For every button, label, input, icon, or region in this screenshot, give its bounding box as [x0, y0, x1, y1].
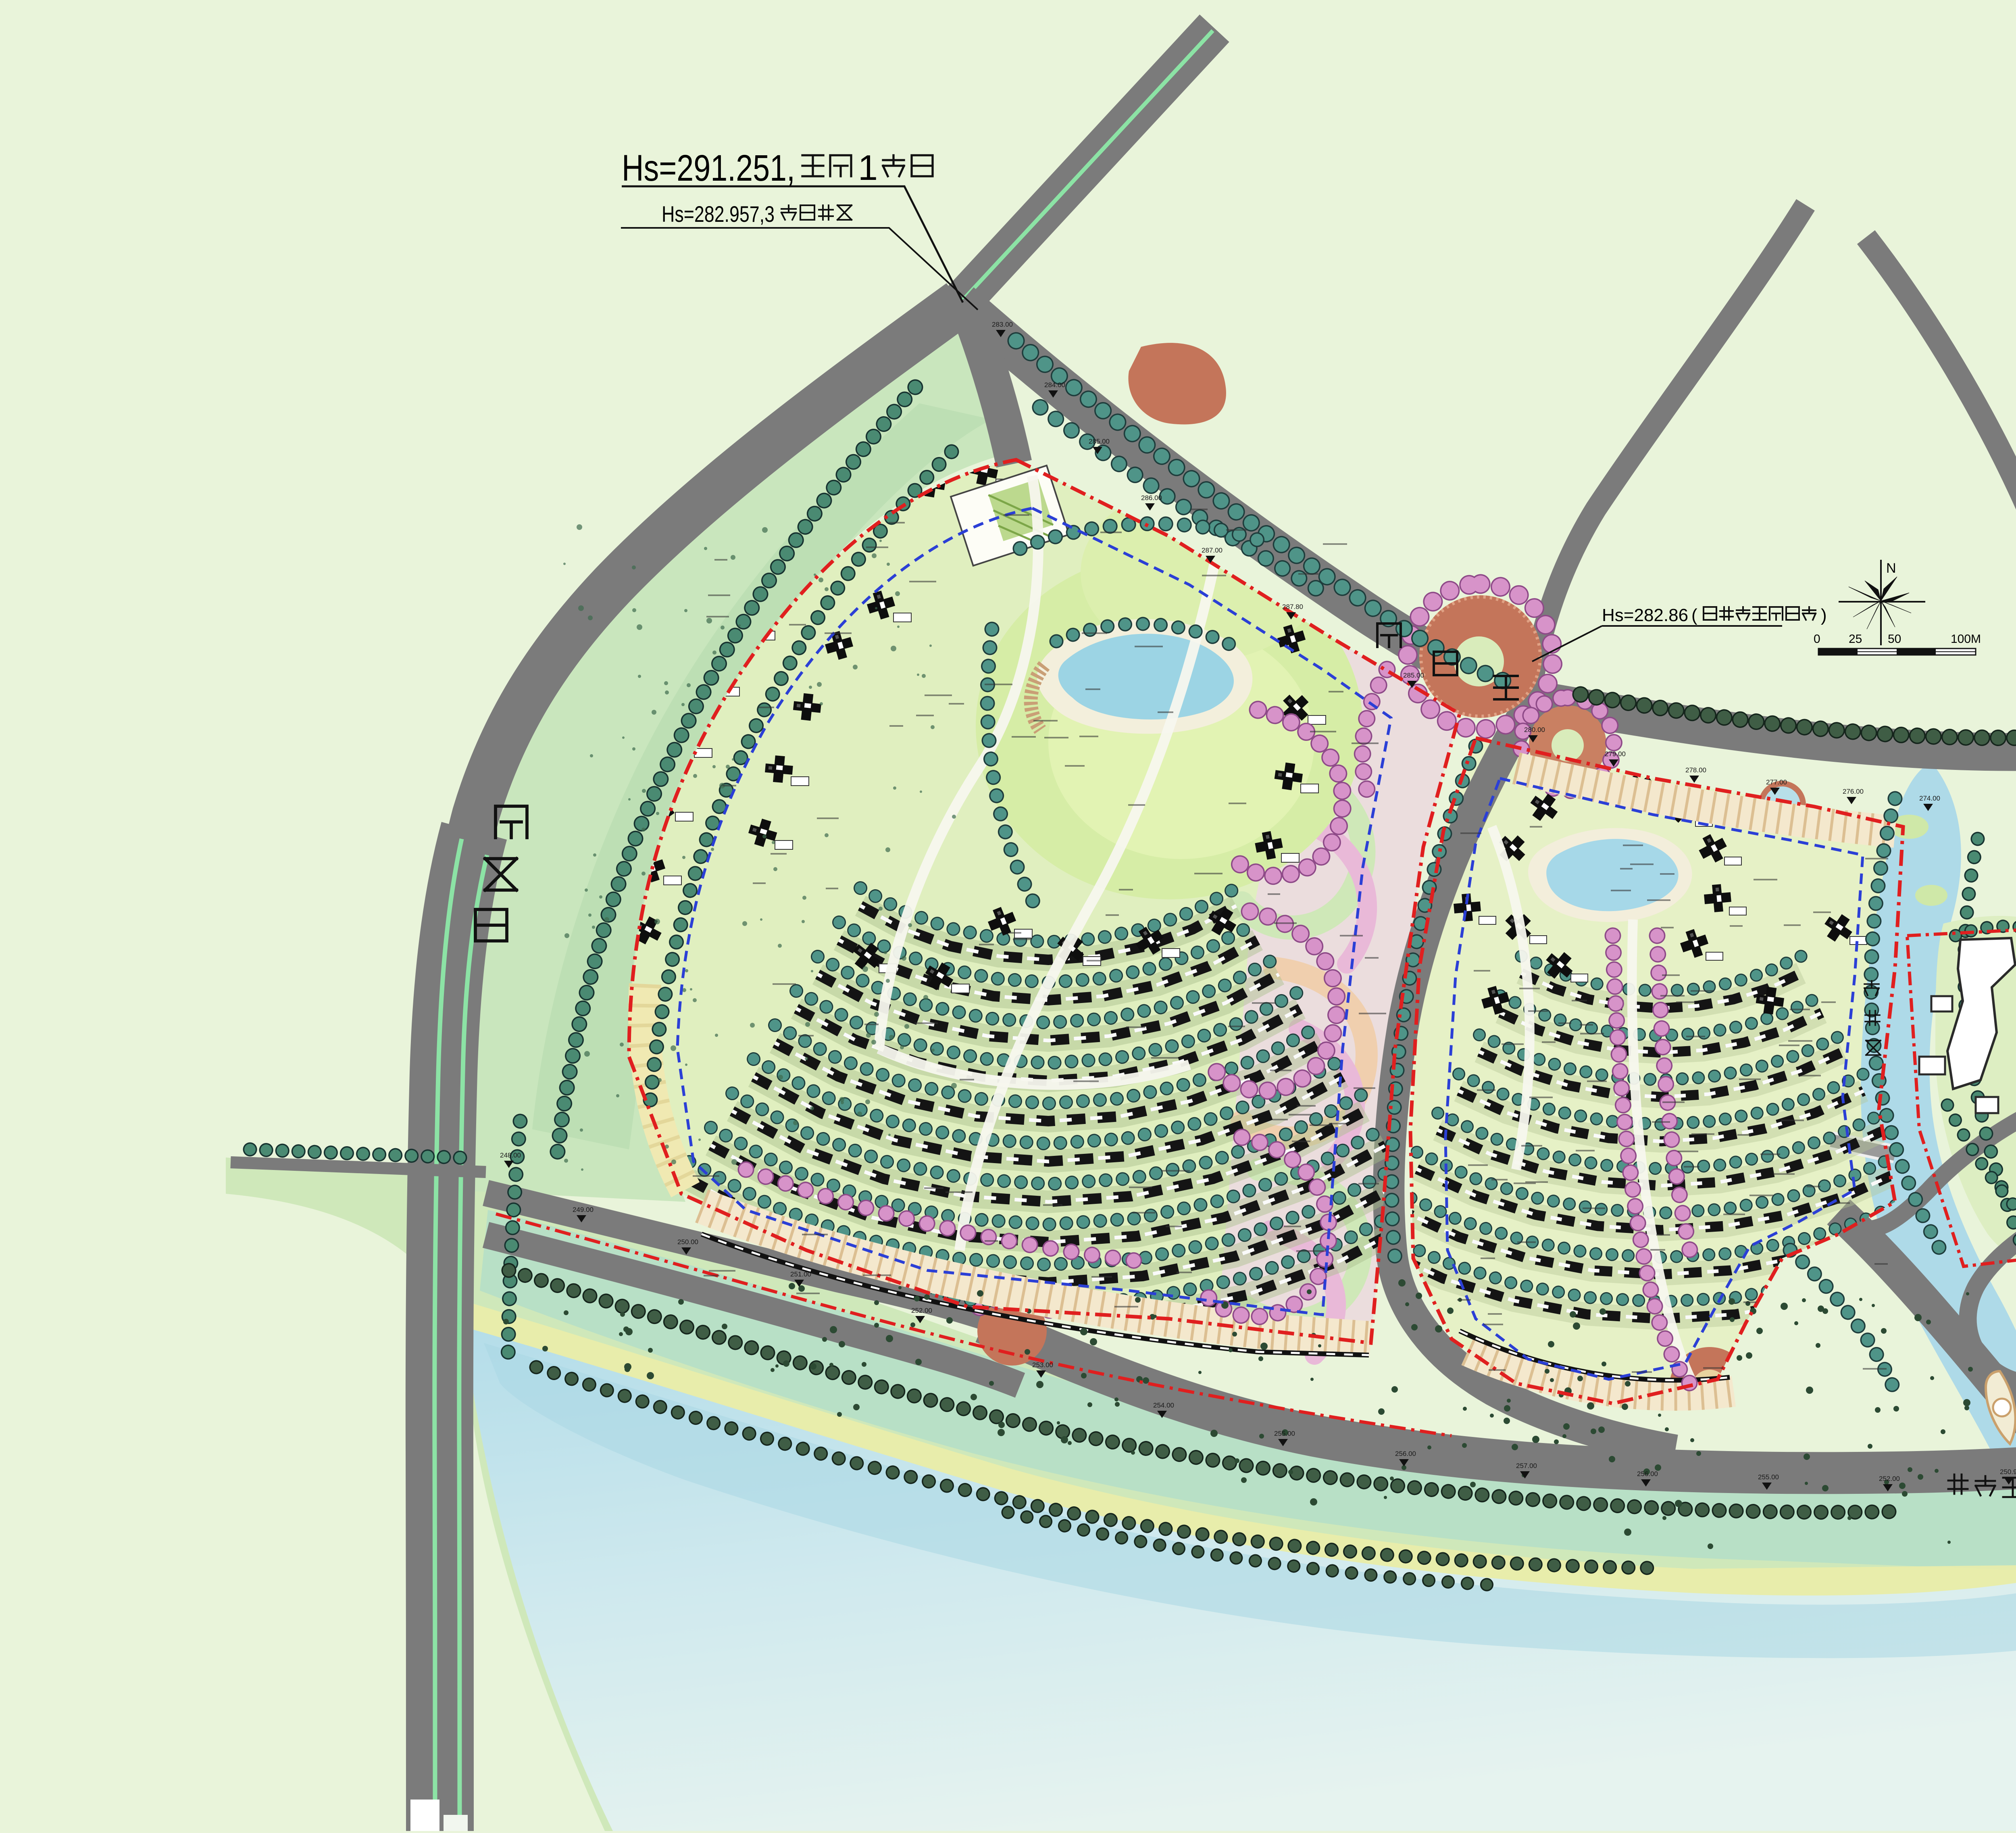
svg-text:252.00: 252.00: [1879, 1475, 1900, 1483]
svg-text:286.00: 286.00: [1141, 494, 1162, 502]
svg-text:100M: 100M: [1951, 632, 1981, 646]
svg-text:254.00: 254.00: [1153, 1401, 1174, 1409]
svg-text:277.00: 277.00: [1766, 778, 1787, 786]
svg-text:25: 25: [1849, 632, 1862, 646]
svg-text:249.00: 249.00: [573, 1206, 594, 1214]
svg-text:252.00: 252.00: [911, 1307, 932, 1314]
svg-text:1: 1: [858, 148, 878, 188]
svg-text:287.80: 287.80: [1282, 603, 1303, 611]
svg-text:256.00: 256.00: [1637, 1470, 1658, 1478]
svg-text:N: N: [1886, 561, 1896, 576]
svg-text:257.00: 257.00: [1516, 1462, 1537, 1470]
svg-text:278.00: 278.00: [1685, 766, 1706, 774]
svg-text:276.00: 276.00: [1843, 788, 1864, 795]
svg-text:248.00: 248.00: [500, 1151, 521, 1159]
svg-text:284.00: 284.00: [1044, 381, 1065, 389]
svg-text:287.00: 287.00: [1202, 546, 1223, 554]
svg-text:279.00: 279.00: [1605, 750, 1626, 758]
svg-text:255.00: 255.00: [1758, 1473, 1779, 1481]
svg-text:280.00: 280.00: [1524, 726, 1545, 734]
svg-text:0: 0: [1814, 632, 1820, 646]
svg-text:256.00: 256.00: [1395, 1450, 1416, 1458]
svg-text:(: (: [1691, 605, 1697, 625]
svg-text:251.00: 251.00: [790, 1270, 811, 1278]
svg-text:50: 50: [1888, 632, 1901, 646]
svg-text:): ): [1821, 605, 1827, 625]
svg-text:255.00: 255.00: [1274, 1430, 1295, 1437]
svg-text:285.00: 285.00: [1089, 438, 1110, 445]
svg-text:Hs=291.251,: Hs=291.251,: [622, 148, 795, 189]
svg-text:274.00: 274.00: [1919, 795, 1940, 802]
svg-text:283.00: 283.00: [992, 321, 1013, 328]
svg-text:250.90: 250.90: [2000, 1468, 2016, 1476]
svg-text:Hs=282.86: Hs=282.86: [1602, 605, 1688, 625]
svg-text:285.00: 285.00: [1403, 671, 1424, 679]
svg-text:Hs=282.957,3: Hs=282.957,3: [662, 201, 775, 227]
svg-text:250.00: 250.00: [677, 1238, 698, 1246]
svg-text:253.00: 253.00: [1032, 1361, 1053, 1369]
